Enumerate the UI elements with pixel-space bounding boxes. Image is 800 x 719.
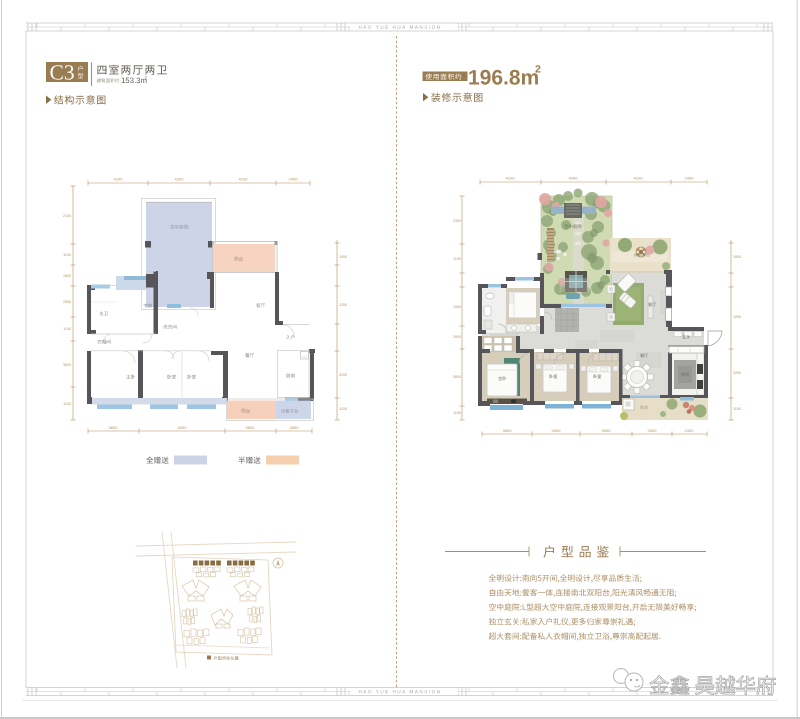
svg-text:1200: 1200	[339, 303, 347, 307]
svg-text:1100: 1100	[453, 257, 461, 261]
svg-text:1200: 1200	[733, 315, 741, 319]
svg-text:1500: 1500	[453, 305, 461, 309]
svg-text:1100: 1100	[63, 253, 71, 257]
svg-text:1100: 1100	[63, 327, 71, 331]
svg-text:3600: 3600	[63, 363, 71, 367]
svg-text:4100: 4100	[114, 177, 124, 182]
svg-text:4100: 4100	[239, 177, 249, 182]
svg-text:4000: 4000	[552, 428, 562, 433]
svg-text:1100: 1100	[339, 407, 347, 411]
svg-text:4200: 4200	[569, 176, 579, 181]
svg-text:2400: 2400	[685, 176, 695, 181]
svg-text:1100: 1100	[733, 407, 741, 411]
svg-text:2200: 2200	[339, 373, 347, 377]
svg-text:2900: 2900	[63, 300, 71, 304]
svg-text:1000: 1000	[339, 255, 347, 259]
svg-text:3000: 3000	[648, 428, 658, 433]
svg-text:4100: 4100	[506, 176, 516, 181]
svg-text:1100: 1100	[453, 411, 461, 415]
svg-text:2300: 2300	[453, 219, 461, 223]
svg-text:2400: 2400	[289, 177, 299, 182]
svg-text:3600: 3600	[503, 428, 513, 433]
svg-text:2200: 2200	[733, 371, 741, 375]
svg-text:2900: 2900	[453, 335, 461, 339]
svg-text:4200: 4200	[175, 177, 185, 182]
svg-text:2400: 2400	[685, 428, 695, 433]
svg-text:1000: 1000	[733, 255, 741, 259]
svg-text:2100: 2100	[63, 214, 71, 218]
svg-text:3600: 3600	[453, 375, 461, 379]
svg-text:2500: 2500	[290, 425, 300, 430]
svg-text:3600: 3600	[109, 425, 119, 430]
svg-text:1500: 1500	[63, 274, 71, 278]
svg-text:6000: 6000	[178, 425, 188, 430]
svg-text:1100: 1100	[63, 402, 71, 406]
svg-text:3900: 3900	[602, 428, 612, 433]
svg-text:4100: 4100	[634, 176, 644, 181]
svg-text:3600: 3600	[246, 425, 256, 430]
